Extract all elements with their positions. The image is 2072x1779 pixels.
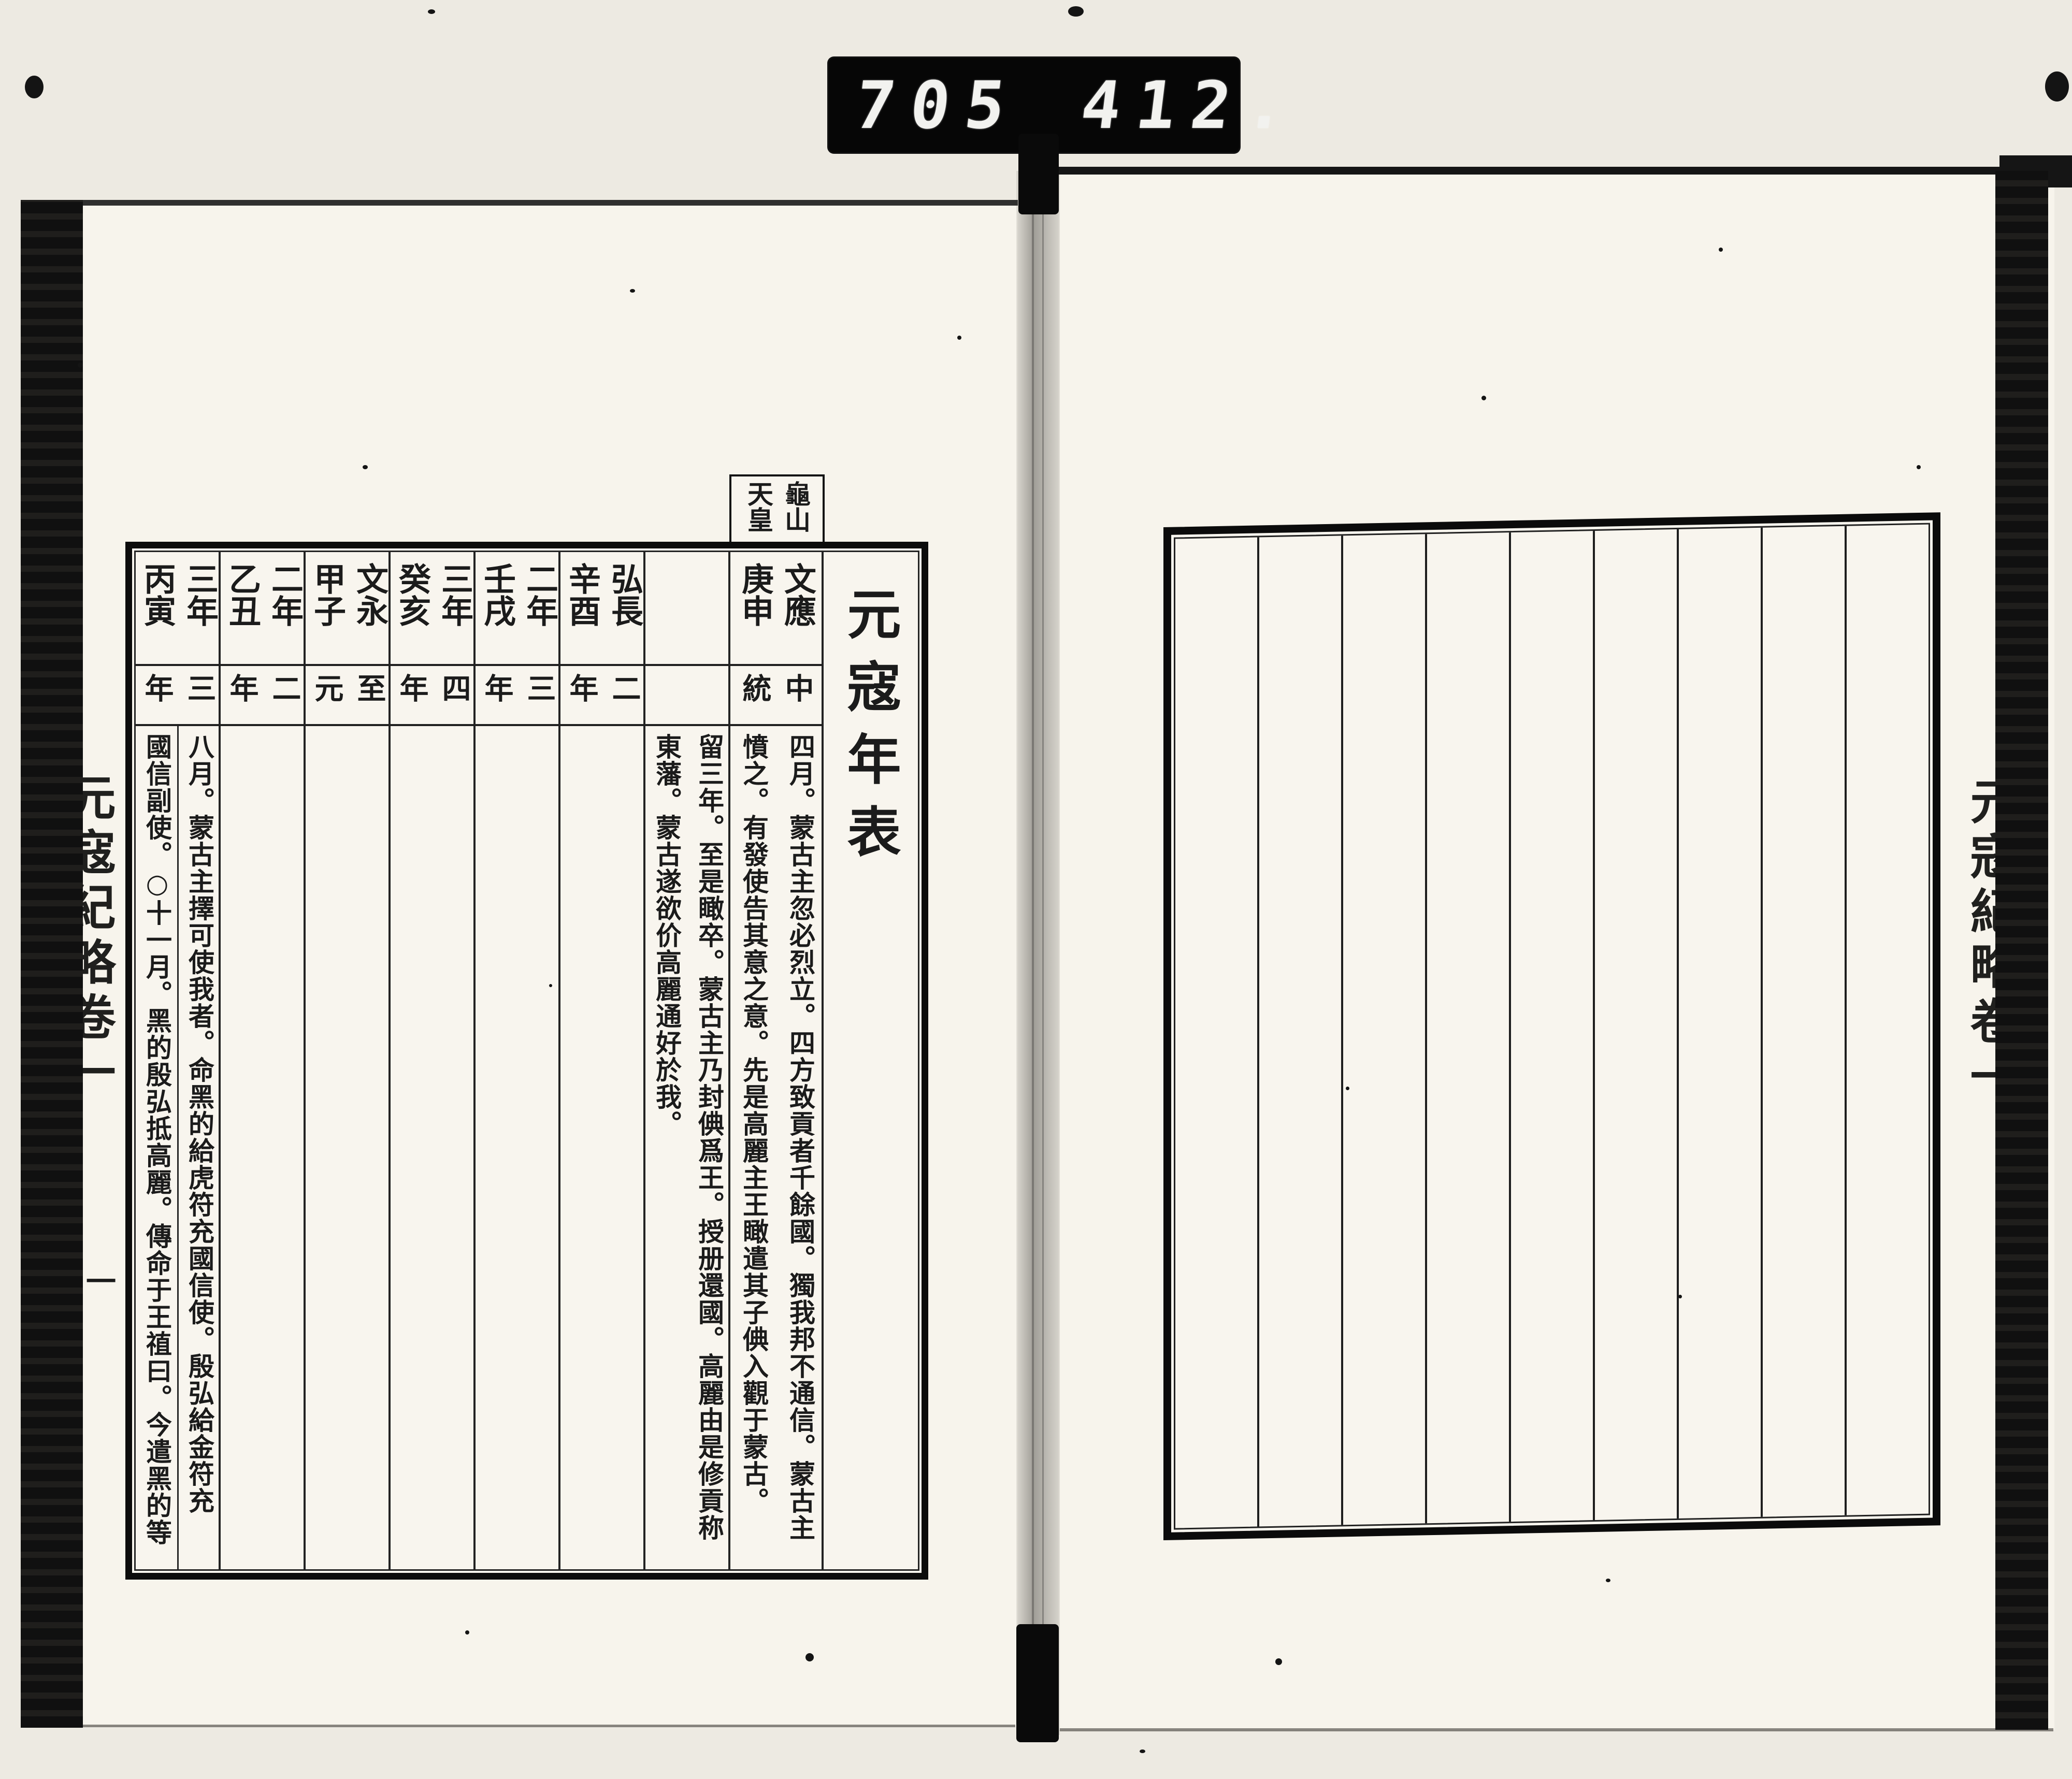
fold-line [1032,207,1034,1626]
cn-era-label: 四 年 [391,673,476,724]
cn-era-label: 三 年 [476,673,560,724]
cn-era-label: 二 年 [560,673,645,724]
right-empty-column [1679,528,1763,1518]
scan-speck [465,1630,469,1635]
empty-ruled-table [1163,512,1940,1540]
cn-era-cell: 至 元 [306,666,391,726]
frame-counter-left-digits: 705 [851,67,1025,143]
table-title: 元寇年表 [824,586,915,1569]
right-page-bottom-edge [1060,1728,2053,1731]
right-page-edge-shadow [1995,171,2048,1730]
left-page-edge-shadow [21,200,83,1728]
era-cell-1261: 弘長 辛酉 [560,552,645,666]
scan-speck [1719,248,1723,252]
era-label: 弘長 辛酉 [560,562,645,664]
scan-speck [1606,1579,1610,1582]
scan-speck [1068,6,1084,17]
right-empty-column [1763,526,1847,1517]
fold-line [1042,207,1044,1626]
entry-cell-1260-continued: 留三年。至是瞰卒。蒙古主乃封倎爲王。授册還國。高麗由是修貢称 東藩。蒙古遂欲价高… [645,726,730,1569]
era-cell-1263: 三年 癸亥 [391,552,476,666]
chronology-grid: 三年 丙寅 二年 乙丑 文永 甲子 三年 癸亥 二年 壬戌 弘長 辛酉 文應 庚… [136,552,918,1569]
cn-era-cell: 四 年 [391,666,476,726]
scan-speck [1346,1087,1349,1090]
scan-speck [428,9,435,14]
era-label: 三年 丙寅 [136,562,221,664]
entry-cell-1260: 四月。蒙古主忽必烈立。四方致貢者千餘國。獨我邦不通信。蒙古主 憤之。有發使告其意… [730,726,824,1569]
era-label: 三年 癸亥 [391,562,476,664]
scan-speck [549,984,552,987]
era-cell-1260: 文應 庚申 [730,552,824,666]
era-cell-continuation [645,552,730,666]
right-empty-column [1259,536,1343,1526]
scan-speck [957,336,961,340]
scan-speck [1481,396,1486,400]
cn-era-cell: 三 年 [476,666,560,726]
left-page-bottom-edge [83,1725,1015,1727]
cn-era-label: 至 元 [306,673,391,724]
left-page-number: 一 [86,1257,116,1301]
fold-bottom-ink-blob [1016,1624,1059,1742]
scan-speck [197,1423,202,1427]
cn-era-cell [645,666,730,726]
entry-cell-empty [476,726,560,1569]
right-empty-column [1511,531,1595,1522]
era-cell-1264: 文永 甲子 [306,552,391,666]
right-empty-column [1343,534,1427,1525]
entry-text: 八月。蒙古主擇可使我者。命黑的給虎符充國信使。殷弘給金符充 國信副使。○十一月。… [136,733,221,1569]
cn-era-label: 中 統 [733,673,818,724]
scanned-book-spread: 705 412. 龜山 天皇 三年 丙寅 二年 乙丑 文永 甲子 三年 癸亥 二… [0,0,2072,1779]
entry-cell-1266: 八月。蒙古主擇可使我者。命黑的給虎符充國信使。殷弘給金符充 國信副使。○十一月。… [136,726,221,1569]
scan-speck [1917,465,1921,469]
scan-speck [1678,1295,1682,1298]
cn-era-cell: 三 年 [136,666,221,726]
scan-speck [363,465,368,469]
scan-speck [630,289,635,293]
right-empty-column [1847,525,1929,1515]
entry-cell-empty [306,726,391,1569]
frame-counter-right-digits: 412. [1077,67,1305,143]
right-table-columns [1174,523,1930,1530]
entry-text: 留三年。至是瞰卒。蒙古主乃封倎爲王。授册還國。高麗由是修貢称 東藩。蒙古遂欲价高… [645,733,730,1569]
cn-era-label: 三 年 [136,673,221,724]
chronology-table: 三年 丙寅 二年 乙丑 文永 甲子 三年 癸亥 二年 壬戌 弘長 辛酉 文應 庚… [125,542,928,1580]
cn-era-cell: 二 年 [221,666,306,726]
era-label: 文應 庚申 [733,562,818,664]
era-cell-1265: 二年 乙丑 [221,552,306,666]
era-cell-1262: 二年 壬戌 [476,552,560,666]
scan-speck [1140,1749,1145,1753]
emperor-name: 龜山 天皇 [740,481,814,544]
emperor-header-tab: 龜山 天皇 [729,474,825,544]
entry-cell-empty [391,726,476,1569]
right-empty-column [1427,532,1511,1523]
era-label: 二年 壬戌 [476,562,560,664]
right-page-top-edge [1059,167,2055,175]
scan-speck [25,76,44,98]
era-label: 文永 甲子 [306,562,391,664]
entry-text: 四月。蒙古主忽必烈立。四方致貢者千餘國。獨我邦不通信。蒙古主 憤之。有發使告其意… [730,733,824,1569]
entry-cell-empty [560,726,645,1569]
right-empty-column [1175,537,1259,1528]
era-cell-1266: 三年 丙寅 [136,552,221,666]
scan-speck [805,1653,814,1661]
table-title-column: 元寇年表 [824,552,915,1569]
center-fold-shadow [1016,171,1060,1735]
cn-era-cell: 中 統 [730,666,824,726]
scan-speck [2045,71,2069,102]
right-empty-column [1595,529,1679,1520]
chronology-table-inner-border: 三年 丙寅 二年 乙丑 文永 甲子 三年 癸亥 二年 壬戌 弘長 辛酉 文應 庚… [134,551,919,1571]
scan-speck [78,363,83,368]
cn-era-label: 二 年 [221,673,306,724]
entry-cell-empty [221,726,306,1569]
fold-top-ink-blob [1018,134,1059,214]
cn-era-cell: 二 年 [560,666,645,726]
era-label: 二年 乙丑 [221,562,306,664]
scan-speck [1275,1658,1282,1665]
left-page-top-edge [79,200,1018,206]
